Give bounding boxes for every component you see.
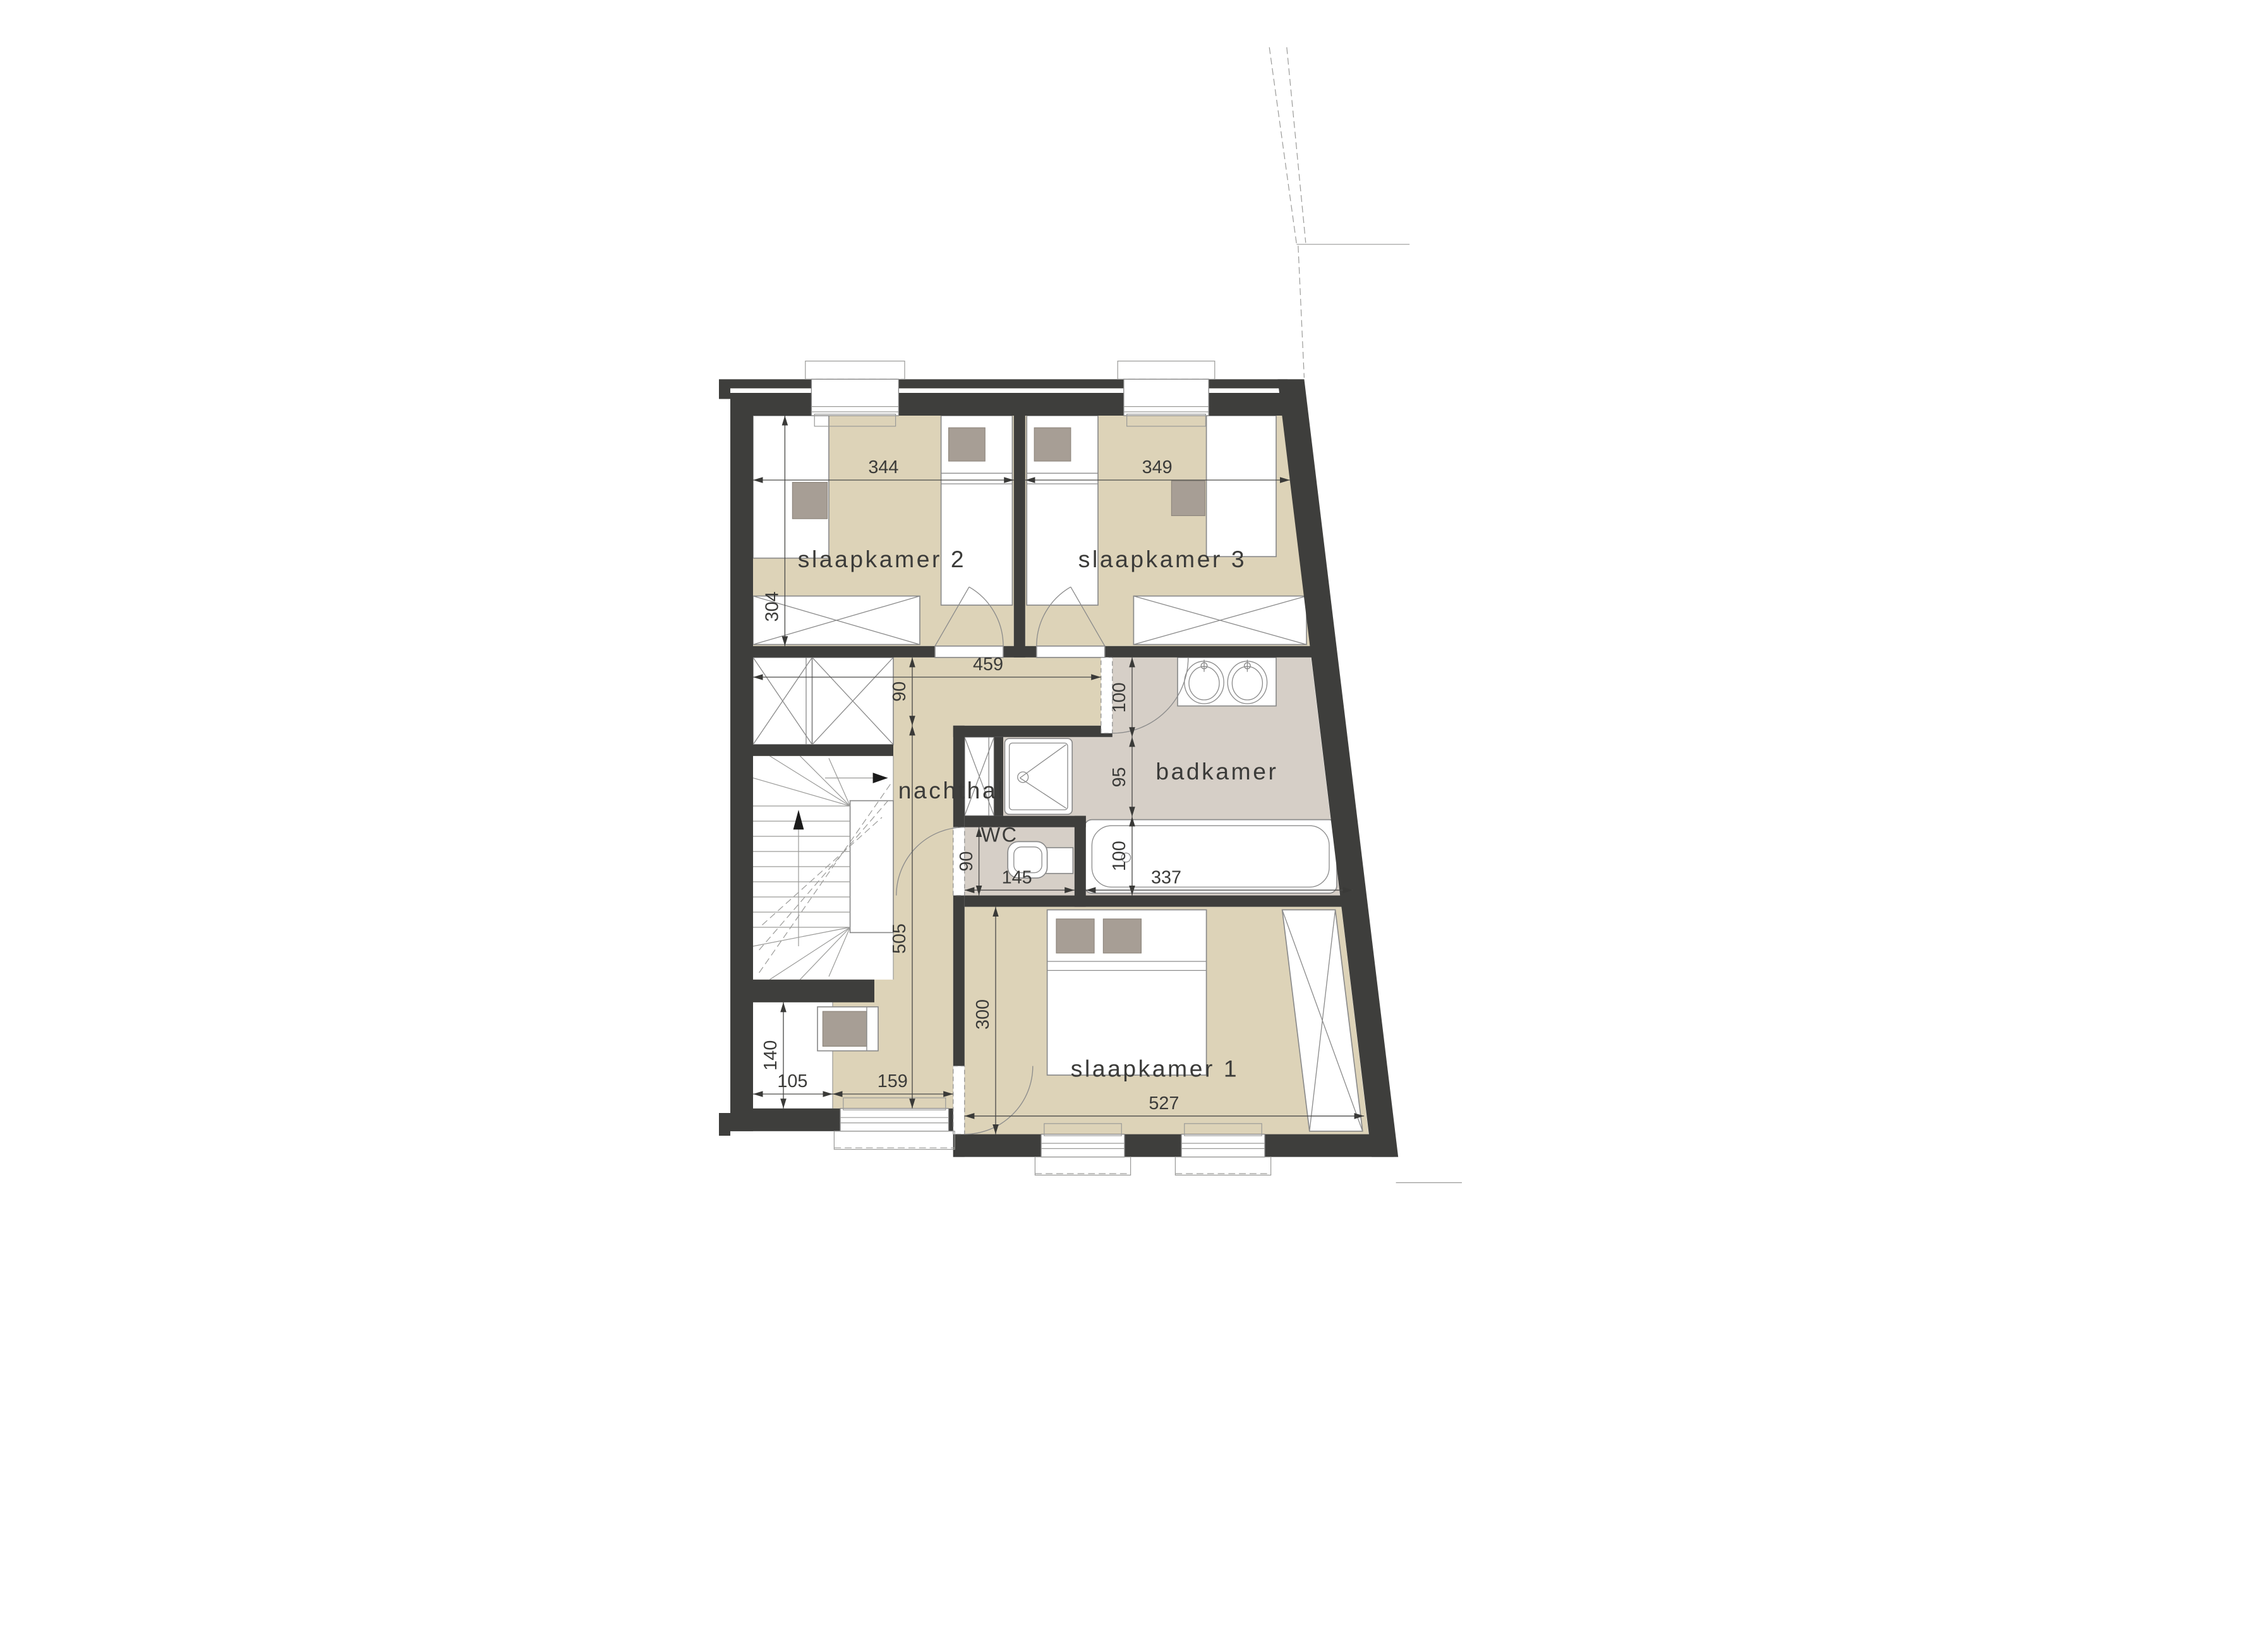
floor-plan: 344 349 304 459 90 505 100 95 100 337 14… — [692, 21, 1481, 1234]
window-outer-sill — [805, 361, 905, 380]
sink-counter — [1178, 658, 1276, 706]
boundary-line — [1298, 246, 1305, 378]
stair-landing — [850, 801, 893, 933]
wall-corner-step — [719, 379, 730, 399]
window-outer-sill — [1175, 1157, 1270, 1176]
window-outer-sill — [1118, 361, 1215, 380]
dim-label: 159 — [878, 1071, 908, 1092]
chair — [1171, 481, 1205, 515]
boundary-line — [1269, 47, 1296, 244]
wall-closet-stub — [753, 745, 893, 756]
wall-bottom-right — [953, 1134, 1394, 1157]
wall-hall-south — [953, 726, 1113, 737]
dim-label: 459 — [973, 654, 1003, 675]
wall-left — [730, 393, 753, 1131]
dim-label: 90 — [956, 851, 977, 872]
pillow — [1103, 919, 1141, 953]
shower-tray — [1004, 738, 1072, 814]
dim-label: 349 — [1142, 457, 1173, 478]
floor-plan-drawing: 344 349 304 459 90 505 100 95 100 337 14… — [692, 21, 1481, 1234]
hall-dresser — [817, 1007, 878, 1051]
boundary-line — [1287, 47, 1306, 243]
dim-label: 105 — [777, 1071, 807, 1092]
room-label-wc: WC — [981, 823, 1018, 846]
window-frame — [1041, 1134, 1125, 1157]
window-frame — [840, 1109, 949, 1131]
room-label-badkamer: badkamer — [1155, 758, 1278, 785]
pillow — [1056, 919, 1094, 953]
toilet-tank — [1046, 848, 1073, 874]
room-label-slaapkamer1: slaapkamer 1 — [1071, 1055, 1239, 1081]
dim-label: 140 — [761, 1040, 781, 1071]
dim-label: 344 — [868, 457, 898, 478]
window-outer-sill — [1035, 1157, 1130, 1176]
dim-label: 100 — [1109, 841, 1130, 871]
wall-badkamer-south — [965, 896, 1356, 907]
wall-stair-stub — [730, 980, 874, 1002]
room-label-slaapkamer3: slaapkamer 3 — [1078, 546, 1246, 572]
chair — [792, 483, 827, 519]
dim-label: 145 — [1002, 867, 1032, 887]
dim-label: 505 — [890, 923, 910, 954]
window-frame — [1124, 379, 1209, 416]
pillow — [1034, 428, 1071, 461]
door-opening-slaapkamer3 — [1037, 646, 1105, 658]
desk — [1207, 416, 1276, 556]
wall-wc-east — [1075, 816, 1086, 907]
page-canvas: { "rooms": { "slaapkamer2": {"label": "s… — [0, 0, 2268, 1636]
dim-label: 90 — [890, 682, 910, 702]
window-frame — [1181, 1134, 1265, 1157]
dim-label: 95 — [1109, 767, 1130, 787]
hall-closets — [753, 658, 893, 745]
room-label-slaapkamer2: slaapkamer 2 — [798, 546, 966, 572]
window-outer-sill — [834, 1131, 955, 1150]
dresser-top — [823, 1011, 867, 1046]
dim-label: 300 — [973, 999, 993, 1030]
room-label-nachthal: nachthal — [898, 777, 1005, 803]
dim-label: 527 — [1149, 1093, 1179, 1114]
window-frame — [811, 379, 898, 416]
wall-between-bedrooms — [1014, 393, 1025, 658]
dim-label: 304 — [763, 591, 783, 622]
wall-corner-step — [719, 1113, 730, 1136]
pillow — [949, 428, 986, 461]
door-leaf-slaapkamer1 — [953, 1066, 965, 1134]
dim-label: 100 — [1109, 682, 1130, 713]
dim-label: 337 — [1151, 867, 1181, 887]
